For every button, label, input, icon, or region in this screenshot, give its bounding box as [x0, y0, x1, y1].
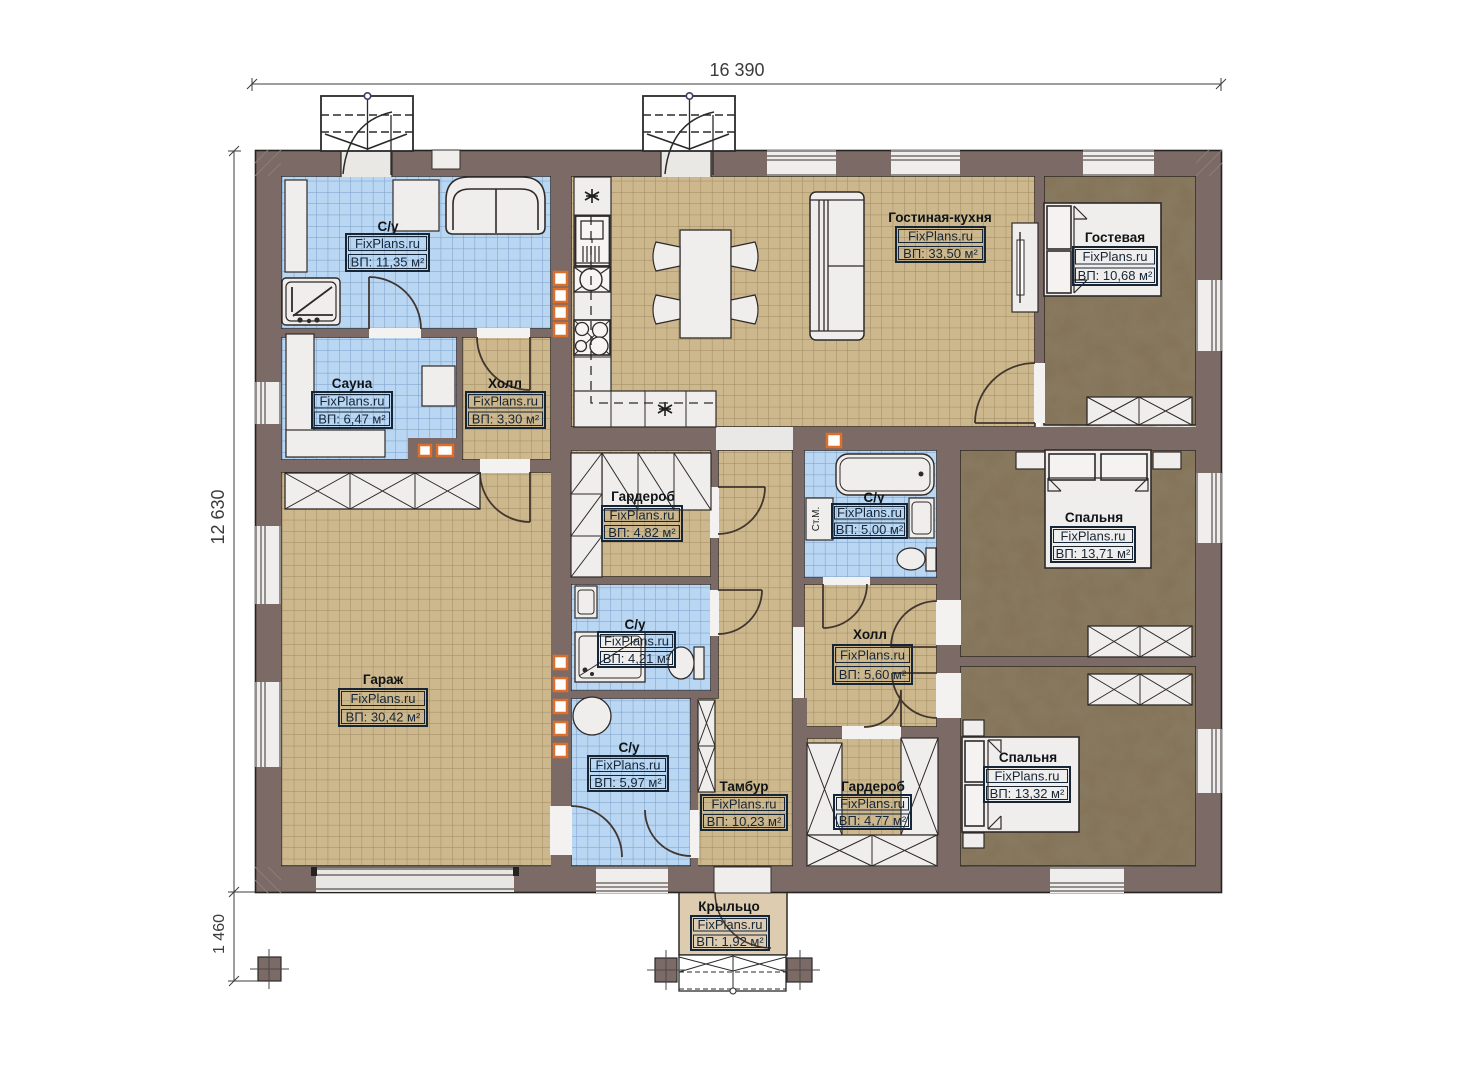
svg-text:ВП: 4,82 м²: ВП: 4,82 м² — [608, 525, 676, 540]
svg-text:С/у: С/у — [618, 740, 640, 755]
svg-text:FixPlans.ru: FixPlans.ru — [994, 768, 1059, 783]
svg-text:ВП: 1,92 м²: ВП: 1,92 м² — [696, 934, 764, 949]
svg-text:FixPlans.ru: FixPlans.ru — [355, 236, 420, 251]
svg-text:ВП: 10,68 м²: ВП: 10,68 м² — [1078, 268, 1153, 283]
svg-text:С/у: С/у — [377, 219, 399, 234]
svg-text:Ст.М.: Ст.М. — [811, 507, 822, 532]
svg-text:Гостиная-кухня: Гостиная-кухня — [888, 210, 991, 225]
svg-text:ВП: 3,30 м²: ВП: 3,30 м² — [472, 412, 540, 427]
svg-text:С/у: С/у — [863, 490, 885, 505]
svg-text:FixPlans.ru: FixPlans.ru — [908, 228, 973, 243]
svg-text:ВП: 5,60 м²: ВП: 5,60 м² — [839, 667, 907, 682]
svg-text:ВП: 33,50 м²: ВП: 33,50 м² — [903, 246, 978, 261]
svg-text:ВП: 10,23 м²: ВП: 10,23 м² — [707, 814, 782, 829]
svg-text:FixPlans.ru: FixPlans.ru — [837, 505, 902, 520]
svg-text:16 390: 16 390 — [709, 60, 764, 80]
svg-text:ВП: 5,97 м²: ВП: 5,97 м² — [594, 775, 662, 790]
svg-text:ВП: 4,21 м²: ВП: 4,21 м² — [603, 651, 671, 666]
svg-text:Гардероб: Гардероб — [841, 779, 905, 794]
svg-text:С/у: С/у — [624, 617, 646, 632]
svg-text:FixPlans.ru: FixPlans.ru — [319, 394, 384, 409]
svg-text:FixPlans.ru: FixPlans.ru — [473, 394, 538, 409]
svg-text:FixPlans.ru: FixPlans.ru — [595, 757, 660, 772]
svg-text:Крыльцо: Крыльцо — [698, 899, 759, 914]
svg-text:ВП: 6,47 м²: ВП: 6,47 м² — [318, 412, 386, 427]
svg-text:Холл: Холл — [853, 627, 887, 642]
svg-text:ВП: 13,71 м²: ВП: 13,71 м² — [1056, 546, 1131, 561]
svg-text:FixPlans.ru: FixPlans.ru — [840, 796, 905, 811]
svg-text:FixPlans.ru: FixPlans.ru — [697, 917, 762, 932]
svg-text:FixPlans.ru: FixPlans.ru — [604, 633, 669, 648]
svg-text:ВП: 4,77 м²: ВП: 4,77 м² — [839, 813, 907, 828]
svg-text:FixPlans.ru: FixPlans.ru — [840, 647, 905, 662]
svg-text:1 460: 1 460 — [211, 914, 228, 954]
svg-text:FixPlans.ru: FixPlans.ru — [711, 796, 776, 811]
svg-text:Гардероб: Гардероб — [611, 489, 675, 504]
svg-text:ВП: 30,42 м²: ВП: 30,42 м² — [346, 709, 421, 724]
svg-text:Гостевая: Гостевая — [1085, 230, 1145, 245]
svg-text:Холл: Холл — [488, 376, 522, 391]
svg-text:Спальня: Спальня — [1065, 510, 1123, 525]
svg-text:FixPlans.ru: FixPlans.ru — [350, 691, 415, 706]
svg-text:ВП: 11,35 м²: ВП: 11,35 м² — [351, 254, 425, 269]
svg-text:ВП: 5,00 м²: ВП: 5,00 м² — [836, 522, 904, 537]
svg-text:Спальня: Спальня — [999, 750, 1057, 765]
svg-text:Гараж: Гараж — [363, 672, 404, 687]
svg-text:12 630: 12 630 — [208, 489, 228, 544]
svg-text:ВП: 13,32 м²: ВП: 13,32 м² — [990, 786, 1065, 801]
svg-text:FixPlans.ru: FixPlans.ru — [609, 507, 674, 522]
svg-text:Тамбур: Тамбур — [720, 779, 769, 794]
svg-text:Сауна: Сауна — [332, 376, 373, 391]
svg-text:FixPlans.ru: FixPlans.ru — [1060, 528, 1125, 543]
svg-text:FixPlans.ru: FixPlans.ru — [1082, 249, 1147, 264]
